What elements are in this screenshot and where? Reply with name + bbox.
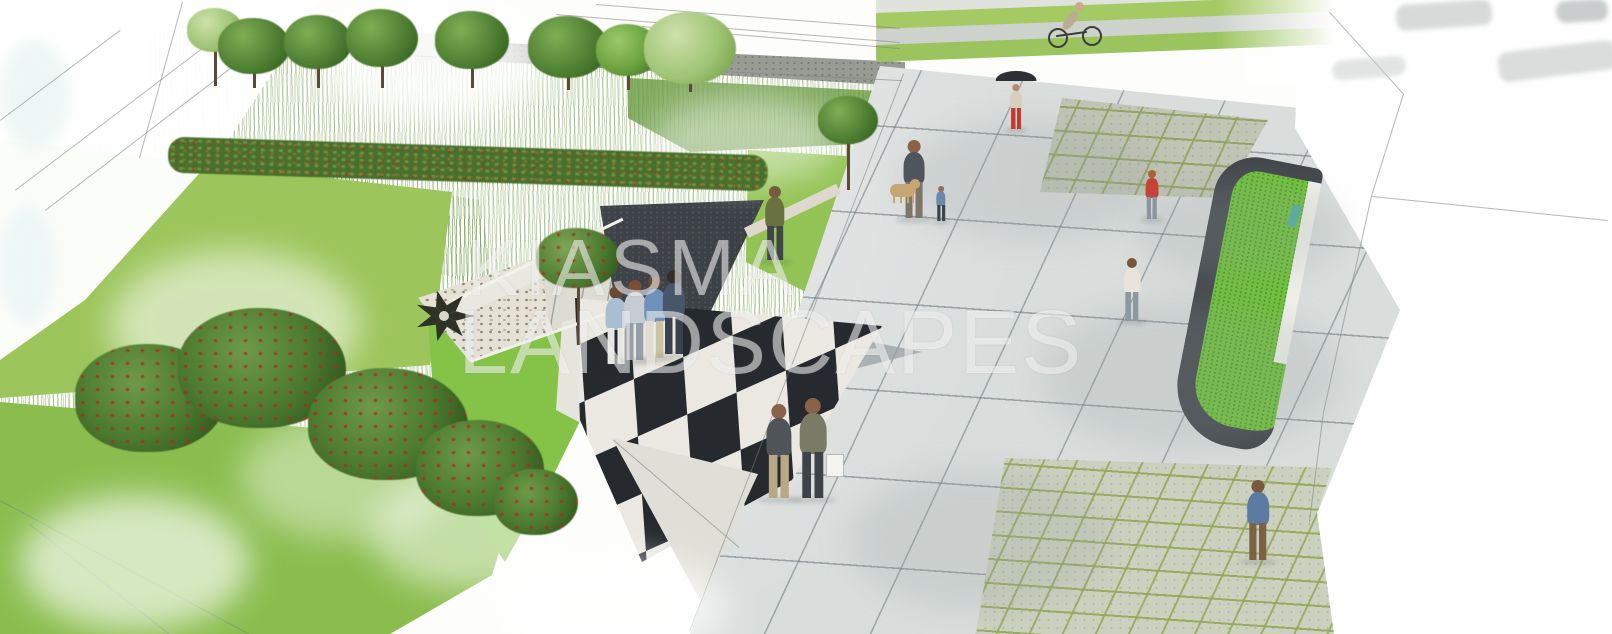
toddler [935, 186, 948, 222]
walking-man-gray-torso [766, 418, 791, 456]
child-red-shirt-torso [1146, 178, 1159, 198]
man-blue-jacket-legs [1249, 523, 1266, 560]
walking-man-olive-bag [826, 454, 845, 476]
walking-man-gray-head [771, 404, 786, 419]
running-girl-legs [1125, 292, 1138, 321]
cyclist-torso [1061, 9, 1081, 31]
dog-leg-4 [912, 190, 914, 203]
man-blue-jacket-torso [1247, 492, 1269, 525]
cyclist [1046, 2, 1106, 52]
walking-man-gray [762, 404, 797, 500]
bike-wheel-front [1082, 26, 1102, 46]
running-girl [1121, 258, 1144, 322]
walking-man-olive-torso [800, 413, 827, 454]
cyclist-head [1075, 2, 1084, 11]
dog-leg-1 [893, 190, 895, 203]
umbrella-walker-legs [1011, 108, 1021, 129]
man-blue-jacket-head [1251, 480, 1264, 493]
walking-man-olive-head [805, 398, 821, 414]
bike-wheel-rear [1048, 28, 1068, 48]
toddler-torso [936, 191, 945, 205]
dog-head [910, 179, 920, 189]
walking-man-olive [795, 398, 832, 500]
child-red-shirt-legs [1147, 197, 1157, 220]
child-red-shirt [1143, 170, 1161, 220]
walking-man-gray-legs [769, 455, 789, 498]
dog-leg-2 [900, 190, 902, 203]
umbrella-walker-umbrella [996, 71, 1037, 81]
running-girl-torso [1124, 268, 1141, 294]
dog [886, 176, 926, 206]
toddler-legs [937, 205, 945, 221]
grass-path-walker-head [769, 186, 781, 198]
dog-leg-3 [907, 190, 909, 203]
man-blue-jacket [1243, 480, 1273, 562]
walking-man-olive-legs [802, 452, 823, 498]
landscape-rendering: KIASMA LANDSCAPES [0, 0, 1612, 634]
umbrella-walker-torso [1010, 91, 1022, 109]
watermark-line2: LANDSCAPES [458, 298, 1083, 388]
man-with-dog-head [908, 140, 921, 153]
umbrella-walker [1008, 84, 1025, 130]
